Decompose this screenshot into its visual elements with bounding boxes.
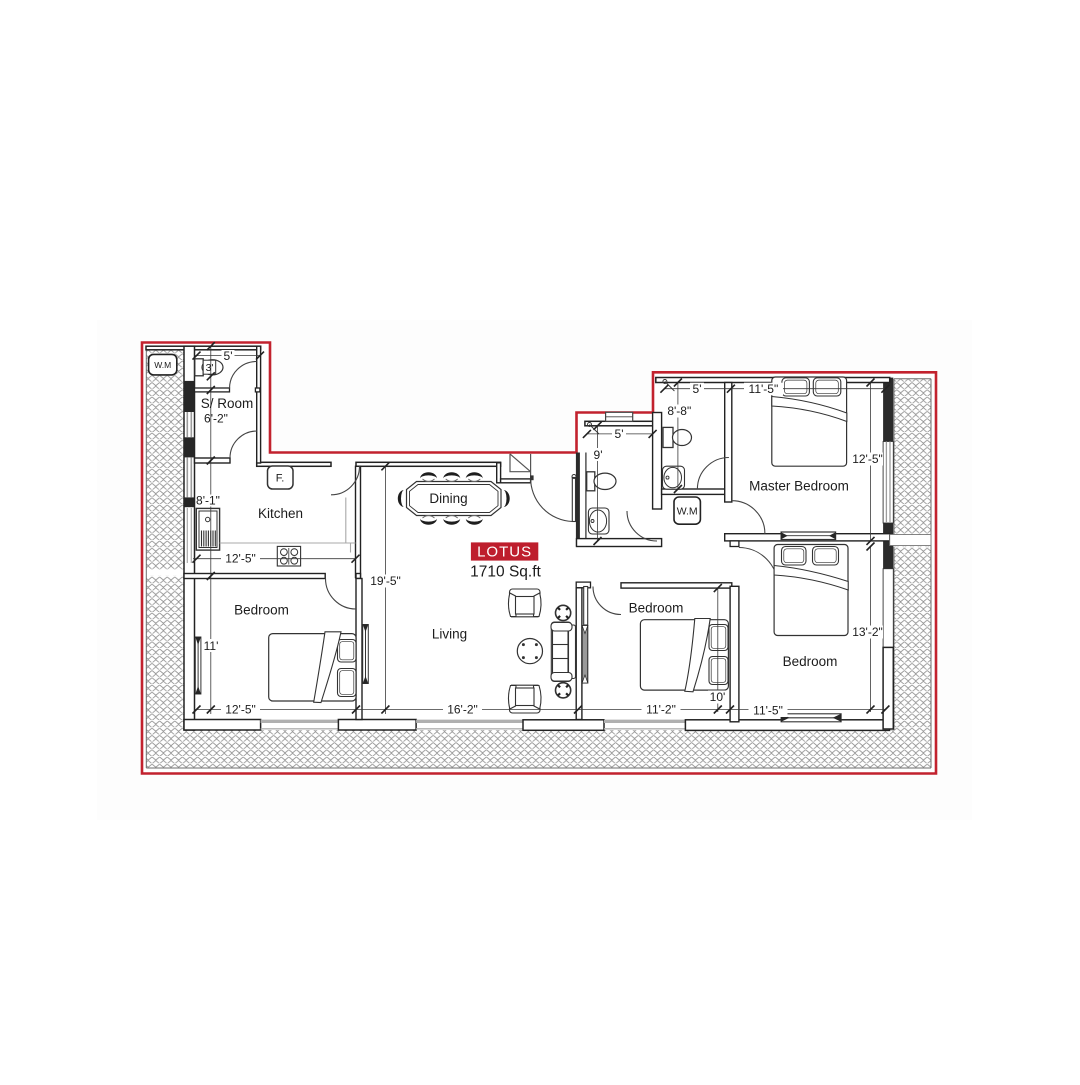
svg-text:16'-2": 16'-2" <box>447 702 478 716</box>
svg-text:11': 11' <box>204 639 219 653</box>
svg-text:12'-5": 12'-5" <box>225 702 256 716</box>
svg-text:12'-5": 12'-5" <box>225 552 256 566</box>
svg-text:5': 5' <box>615 427 624 441</box>
svg-text:9': 9' <box>594 448 603 462</box>
svg-text:5': 5' <box>693 382 702 396</box>
svg-text:12'-5": 12'-5" <box>852 452 883 466</box>
svg-text:LOTUS: LOTUS <box>477 544 532 561</box>
svg-text:8'-1": 8'-1" <box>196 494 220 508</box>
svg-text:Bedroom: Bedroom <box>629 601 684 616</box>
svg-text:Bedroom: Bedroom <box>783 654 838 669</box>
svg-text:Bedroom: Bedroom <box>234 603 289 618</box>
svg-text:6'-2": 6'-2" <box>204 412 228 426</box>
svg-text:Kitchen: Kitchen <box>258 506 303 521</box>
svg-text:5': 5' <box>224 349 233 363</box>
svg-text:11'-5": 11'-5" <box>749 382 779 396</box>
svg-text:W.M: W.M <box>154 360 171 370</box>
svg-text:19'-5": 19'-5" <box>370 574 401 588</box>
svg-text:Dining: Dining <box>429 491 467 506</box>
svg-text:F.: F. <box>276 473 285 485</box>
svg-text:10': 10' <box>710 690 726 704</box>
svg-text:11'-5": 11'-5" <box>753 704 783 718</box>
svg-text:S/ Room: S/ Room <box>201 396 254 411</box>
svg-text:Living: Living <box>432 627 467 642</box>
svg-text:8'-8": 8'-8" <box>667 404 691 418</box>
svg-text:1710 Sq.ft: 1710 Sq.ft <box>470 564 541 581</box>
svg-text:Master Bedroom: Master Bedroom <box>749 479 849 494</box>
svg-text:11'-2": 11'-2" <box>646 702 676 716</box>
svg-text:3': 3' <box>206 362 214 374</box>
svg-text:13'-2": 13'-2" <box>852 625 883 639</box>
svg-text:W.M: W.M <box>677 506 698 518</box>
